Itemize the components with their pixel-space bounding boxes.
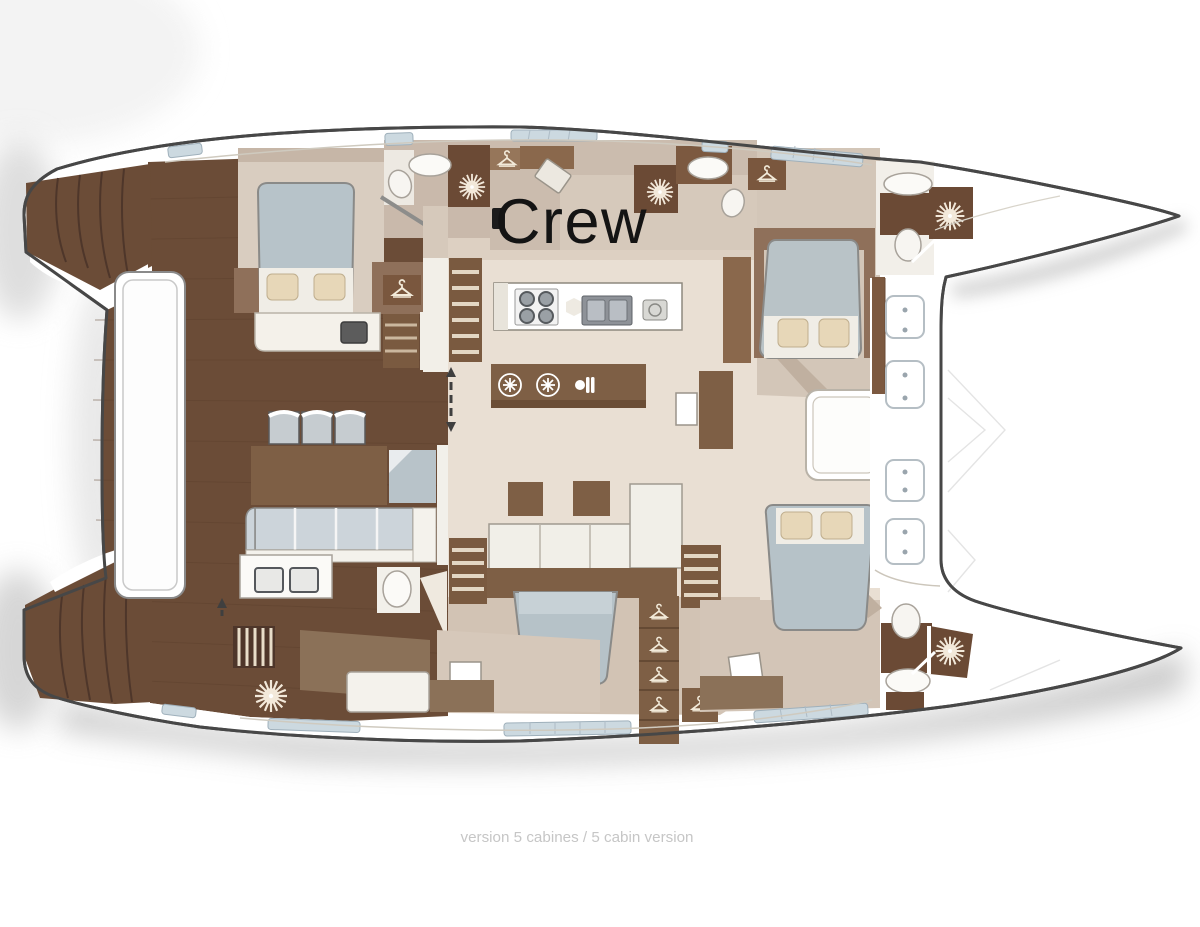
svg-text:version 5 cabines / 5 cabin ve: version 5 cabines / 5 cabin version (460, 829, 693, 846)
svg-text:Crew: Crew (495, 187, 648, 257)
